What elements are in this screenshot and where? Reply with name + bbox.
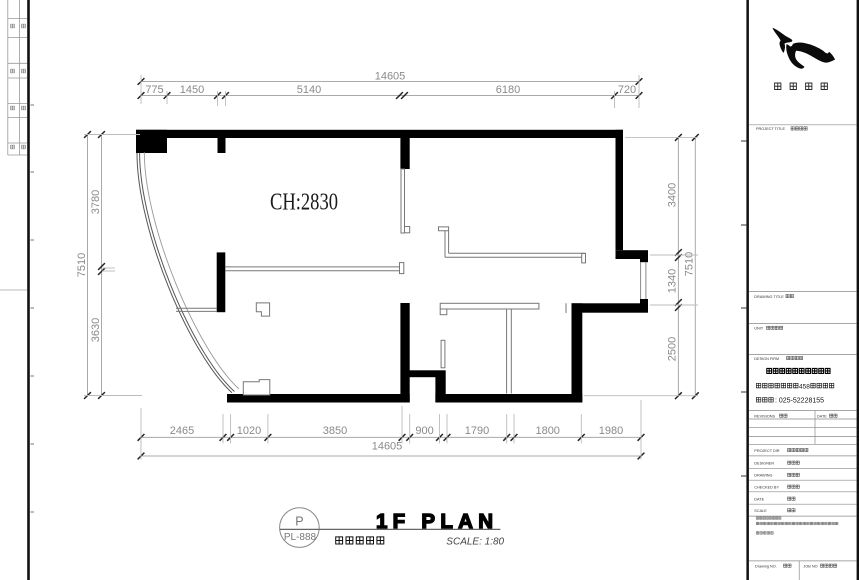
svg-text:5140: 5140 bbox=[297, 84, 321, 96]
svg-text:3400: 3400 bbox=[667, 183, 679, 207]
svg-text:REVISIONS: REVISIONS bbox=[754, 414, 775, 418]
svg-text:JOB NO: JOB NO bbox=[803, 564, 817, 568]
svg-text:3780: 3780 bbox=[90, 190, 102, 214]
svg-text:SCALE: SCALE bbox=[754, 509, 767, 513]
svg-text:UNIT: UNIT bbox=[754, 327, 764, 331]
svg-text:PROJECT DIR: PROJECT DIR bbox=[754, 449, 780, 453]
svg-text:3850: 3850 bbox=[323, 425, 347, 437]
svg-text:458: 458 bbox=[799, 384, 810, 391]
svg-text:720: 720 bbox=[618, 84, 636, 96]
svg-text:3630: 3630 bbox=[90, 318, 102, 342]
svg-text:Drawing NO.: Drawing NO. bbox=[755, 564, 777, 568]
svg-text:2500: 2500 bbox=[667, 337, 679, 361]
svg-text:DESIGN FIRM: DESIGN FIRM bbox=[754, 357, 779, 361]
svg-text:1020: 1020 bbox=[237, 425, 261, 437]
svg-text:DRAWING: DRAWING bbox=[754, 474, 772, 478]
svg-text:1340: 1340 bbox=[667, 269, 679, 293]
svg-text:CH:2830: CH:2830 bbox=[270, 190, 338, 216]
svg-text:DATE: DATE bbox=[817, 414, 827, 418]
svg-text:P: P bbox=[295, 515, 303, 529]
svg-text:SCALE: 1:80: SCALE: 1:80 bbox=[446, 537, 504, 548]
svg-text:14605: 14605 bbox=[375, 71, 406, 83]
svg-text:1980: 1980 bbox=[599, 425, 623, 437]
svg-text:CHECKED BY: CHECKED BY bbox=[754, 485, 779, 489]
svg-text:DRAWING TITLE: DRAWING TITLE bbox=[754, 295, 784, 299]
svg-text:DATE: DATE bbox=[754, 497, 764, 501]
svg-text:: 025-52228155: : 025-52228155 bbox=[775, 398, 824, 405]
svg-text:14605: 14605 bbox=[372, 440, 403, 452]
svg-text:1800: 1800 bbox=[535, 425, 559, 437]
svg-text:DESIGNER: DESIGNER bbox=[754, 461, 774, 465]
svg-text:6180: 6180 bbox=[496, 84, 520, 96]
svg-text:1790: 1790 bbox=[465, 425, 489, 437]
svg-text:775: 775 bbox=[145, 84, 163, 96]
svg-text:2465: 2465 bbox=[170, 425, 194, 437]
svg-text:7510: 7510 bbox=[76, 253, 88, 277]
svg-text:900: 900 bbox=[415, 425, 433, 437]
svg-text:PROJECT TITLE: PROJECT TITLE bbox=[756, 127, 785, 131]
svg-text:1450: 1450 bbox=[180, 84, 204, 96]
svg-text:PL-888: PL-888 bbox=[284, 532, 317, 543]
